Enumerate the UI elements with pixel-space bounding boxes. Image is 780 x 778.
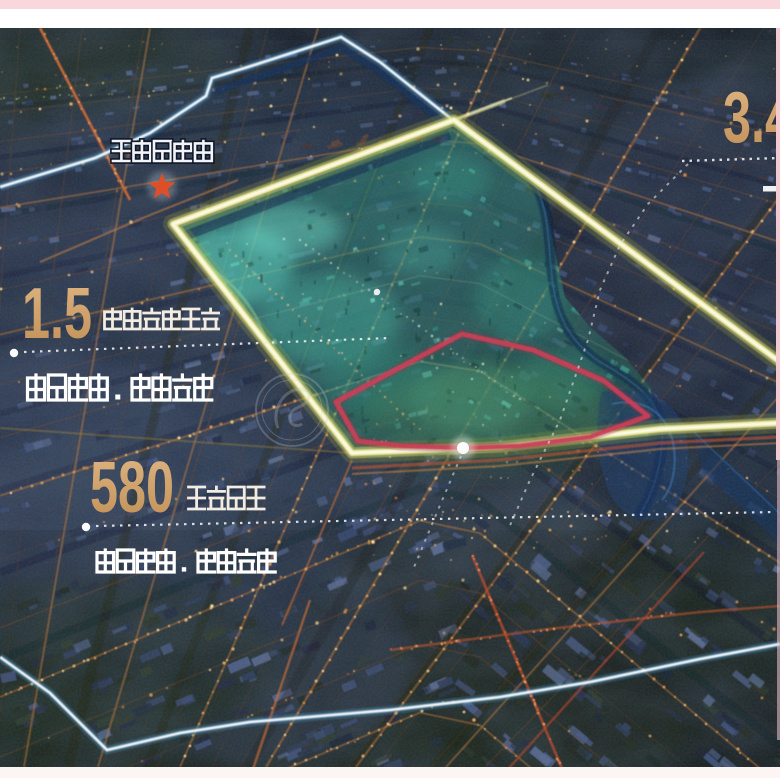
svg-text:1.5: 1.5 <box>22 274 92 354</box>
svg-text:3.4: 3.4 <box>723 78 780 158</box>
svg-text:580: 580 <box>90 448 174 528</box>
